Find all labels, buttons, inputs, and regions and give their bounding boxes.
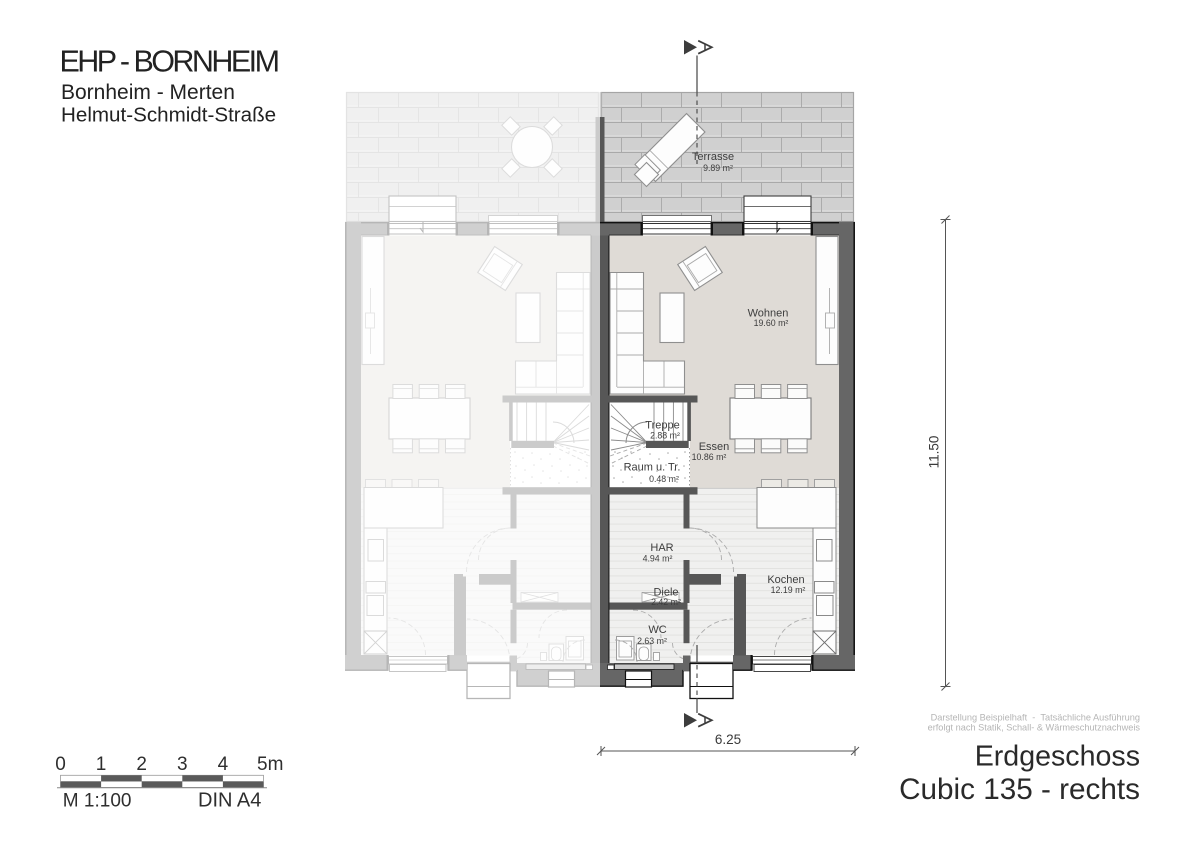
svg-text:EHP - BORNHEIM: EHP - BORNHEIM — [60, 45, 278, 79]
svg-text:2: 2 — [136, 754, 147, 775]
svg-text:3: 3 — [177, 754, 188, 775]
svg-text:2.63 m²: 2.63 m² — [637, 636, 667, 646]
svg-text:11.50: 11.50 — [927, 436, 942, 469]
svg-text:Raum u. Tr.: Raum u. Tr. — [624, 462, 681, 474]
svg-text:erfolgt nach Statik, Schall- &: erfolgt nach Statik, Schall- & Wärmeschu… — [928, 723, 1141, 733]
svg-text:6.25: 6.25 — [715, 732, 741, 747]
svg-text:DIN A4: DIN A4 — [198, 790, 261, 812]
svg-text:WC: WC — [648, 624, 666, 636]
svg-text:2.88 m²: 2.88 m² — [650, 431, 680, 441]
svg-text:10.86 m²: 10.86 m² — [692, 452, 727, 462]
svg-text:HAR: HAR — [650, 542, 673, 554]
svg-text:M 1:100: M 1:100 — [63, 791, 132, 812]
svg-text:Darstellung Beispielhaft - T: Darstellung Beispielhaft - Tatsächliche … — [931, 713, 1140, 723]
svg-text:5m: 5m — [257, 754, 283, 775]
svg-text:2.42 m²: 2.42 m² — [651, 597, 681, 607]
svg-text:Helmut-Schmidt-Straße: Helmut-Schmidt-Straße — [61, 104, 276, 127]
svg-text:Cubic 135 - rechts: Cubic 135 - rechts — [899, 773, 1140, 806]
svg-text:19.60 m²: 19.60 m² — [754, 318, 789, 328]
svg-text:4.94 m²: 4.94 m² — [643, 554, 673, 564]
svg-text:9.89 m²: 9.89 m² — [703, 163, 733, 173]
svg-text:1: 1 — [96, 754, 107, 775]
svg-text:4: 4 — [218, 754, 229, 775]
svg-text:0.48 m²: 0.48 m² — [649, 474, 679, 484]
svg-text:Bornheim - Merten: Bornheim - Merten — [61, 81, 235, 104]
svg-text:0: 0 — [55, 754, 66, 775]
svg-text:12.19 m²: 12.19 m² — [771, 585, 806, 595]
svg-text:Erdgeschoss: Erdgeschoss — [975, 741, 1140, 773]
svg-text:Terrasse: Terrasse — [692, 151, 734, 163]
